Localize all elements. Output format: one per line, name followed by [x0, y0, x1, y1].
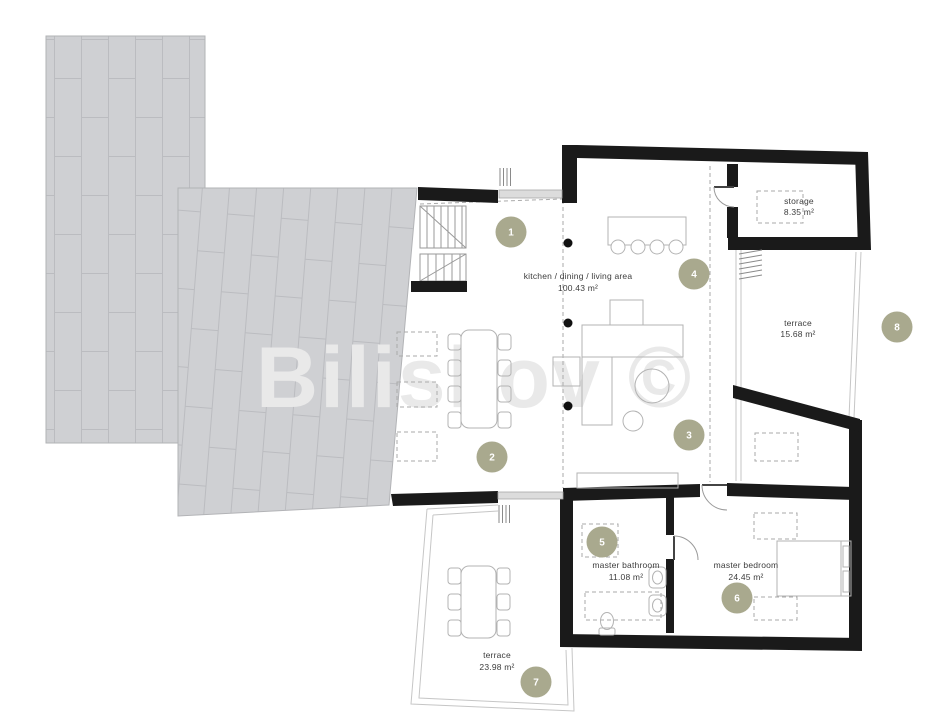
svg-text:1: 1 — [508, 228, 514, 239]
label-terrace-right-area: 15.68 m² — [780, 329, 815, 339]
svg-text:2: 2 — [489, 453, 495, 464]
svg-text:7: 7 — [533, 678, 539, 689]
badge-4: 4 — [679, 259, 710, 290]
kitchen-island — [608, 217, 686, 254]
svg-text:3: 3 — [686, 431, 692, 442]
label-master-bathroom-area: 11.08 m² — [609, 572, 644, 582]
svg-text:8: 8 — [894, 323, 900, 334]
floor-plan-drawing: Biliskov © — [0, 0, 947, 725]
label-kitchen-area: 100.43 m² — [558, 283, 598, 293]
label-storage: storage — [784, 196, 814, 206]
label-storage-area: 8.35 m² — [784, 207, 814, 217]
badge-1: 1 — [496, 217, 527, 248]
bathroom-door — [674, 536, 698, 560]
suite-entry-door — [702, 485, 727, 510]
badge-2: 2 — [477, 442, 508, 473]
label-kitchen-dining-living: kitchen / dining / living area — [524, 271, 633, 281]
terrace-table — [448, 566, 510, 638]
label-master-bedroom-area: 24.45 m² — [728, 572, 763, 582]
floor-plan-canvas: Biliskov © — [0, 0, 947, 725]
label-terrace-right: terrace — [784, 318, 812, 328]
label-master-bedroom: master bedroom — [714, 560, 779, 570]
badge-8: 8 — [882, 312, 913, 343]
room-labels: kitchen / dining / living area 100.43 m²… — [479, 196, 815, 672]
stairs — [420, 206, 466, 281]
badge-6: 6 — [722, 583, 753, 614]
bed — [777, 541, 851, 596]
badge-7: 7 — [521, 667, 552, 698]
label-master-bathroom: master bathroom — [592, 560, 659, 570]
svg-text:5: 5 — [599, 538, 605, 549]
number-badges: 1 2 3 4 5 6 7 8 — [477, 217, 913, 698]
badge-5: 5 — [587, 527, 618, 558]
label-terrace-bottom: terrace — [483, 650, 511, 660]
storage-door — [714, 187, 734, 207]
label-terrace-bottom-area: 23.98 m² — [479, 662, 514, 672]
svg-text:4: 4 — [691, 270, 697, 281]
badge-3: 3 — [674, 420, 705, 451]
zone-dashed-lines — [420, 166, 710, 488]
svg-text:6: 6 — [734, 594, 740, 605]
